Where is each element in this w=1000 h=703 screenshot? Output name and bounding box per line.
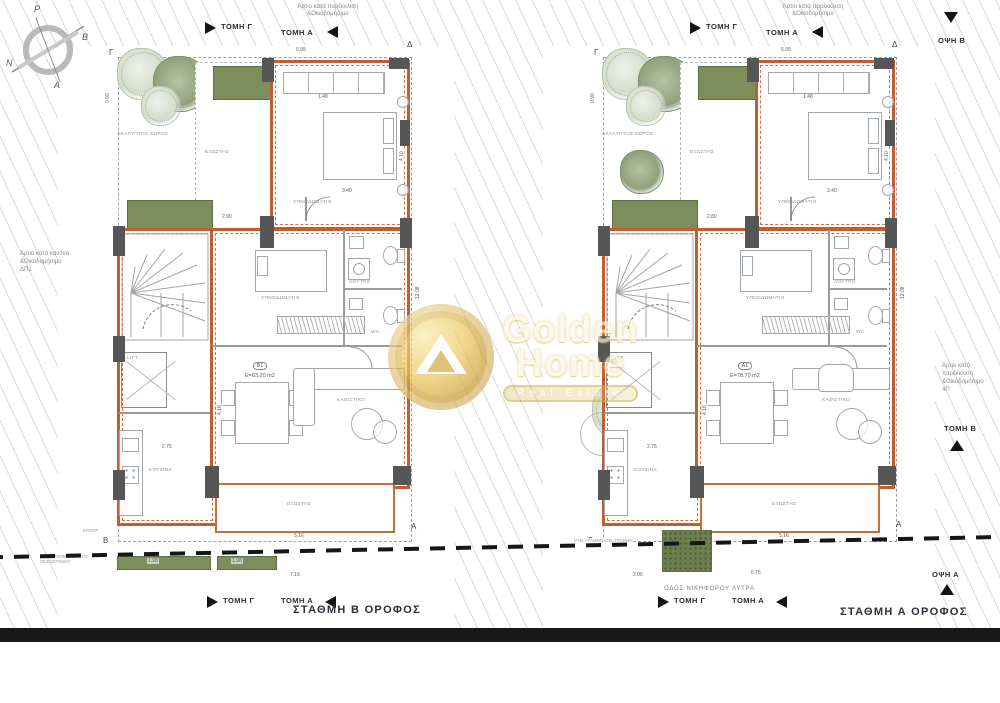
column <box>747 58 759 82</box>
column <box>690 466 704 498</box>
interior-wall <box>344 288 402 290</box>
view-flag-icon <box>940 584 954 595</box>
section-flag-icon <box>205 22 216 34</box>
wardrobe-hangers <box>762 316 850 334</box>
dimension: 0.90 <box>590 92 596 104</box>
door-arc-icon <box>305 196 331 222</box>
side-note-line1: Άρτιο κατά παρέκκλιση <box>942 363 973 377</box>
room-label-kitchen: ΚΟΥΖΙΝΑ <box>634 468 657 473</box>
pillow <box>742 256 753 276</box>
interior-wall <box>119 412 210 414</box>
section-flag-icon <box>207 596 218 608</box>
nightstand-lamp <box>882 96 894 108</box>
room-label-bath: ΛΟΥΤΡΟ <box>834 280 856 285</box>
section-flag-icon <box>658 596 669 608</box>
kitchen-sink <box>122 438 139 452</box>
section-label-b: ΤΟΜΗ Β <box>944 424 976 433</box>
sofa <box>307 368 405 390</box>
dimension: 3.40 <box>826 188 838 194</box>
dimension: 1.48 <box>802 94 814 100</box>
winding-stair-icon <box>121 233 209 341</box>
dimension: 4.10 <box>884 150 890 162</box>
left-plot-note: Άρτιο κατά κανόνα &Οικοδομήσιμο ΔΠ1 <box>20 250 69 274</box>
nightstand-lamp <box>882 184 894 196</box>
plot-corner-delta: Δ <box>892 40 897 49</box>
room-label-uncovered: ΑΚΑΛΥΠΤΟΣ ΧΩΡΟΣ <box>602 132 653 137</box>
top-plot-note: Άρτιο κατά παρέκκλιση &Οικοδομήσιμο <box>758 4 868 18</box>
dimension: 3.40 <box>341 188 353 194</box>
section-flag-icon <box>812 26 823 38</box>
toilet <box>383 246 398 265</box>
chair <box>221 420 235 436</box>
dimension: 12.08 <box>415 285 421 300</box>
section-flag-icon <box>776 596 787 608</box>
column <box>113 470 125 500</box>
column <box>389 58 409 69</box>
unit-area: Ε=63.20 m2 <box>245 373 275 379</box>
sheet-border-bar <box>0 628 1000 642</box>
dimension: 4.10 <box>399 150 405 162</box>
column <box>400 120 410 146</box>
balcony-walls <box>700 483 880 533</box>
view-flag-icon <box>944 12 958 23</box>
section-label-a: ΤΟΜΗ Α <box>281 28 313 37</box>
dimension: 1.98 <box>231 558 243 564</box>
toilet-tank <box>882 309 890 323</box>
compass-letter-left: Ν <box>6 58 13 68</box>
dimension: 5.16 <box>293 533 305 539</box>
dimension: 7.16 <box>289 572 301 578</box>
side-note-line3: ΔΠ1 <box>20 267 32 273</box>
planted-bed <box>662 530 712 572</box>
dining-table <box>720 382 774 444</box>
column <box>598 226 610 256</box>
street-line-letter-b: Β <box>103 536 108 545</box>
dimension: 4.18 <box>217 404 223 416</box>
room-label-bedroom2: ΥΠΝΟΔΩΜΑΤΙΟ <box>261 296 300 301</box>
shower-drain <box>353 263 365 275</box>
room-label-bedroom2: ΥΠΝΟΔΩΜΑΤΙΟ <box>746 296 785 301</box>
dimension: 2.75 <box>646 444 658 450</box>
tree-icon <box>141 86 181 126</box>
toilet <box>868 306 883 325</box>
room-label-erker: ΕΡΚΕΡ <box>83 528 98 533</box>
planter <box>217 556 277 570</box>
room-label-living: ΚΑΘΙΣΤΙΚΟ <box>337 398 365 403</box>
unit-id: Β1 <box>253 362 268 370</box>
sink <box>349 298 363 310</box>
dimension: 4.18 <box>702 404 708 416</box>
dimension: 1.48 <box>317 94 329 100</box>
room-label-terrace: ΕΞΩΣΤΗΣ <box>690 150 714 155</box>
section-label-g: ΤΟΜΗ Γ <box>221 22 253 31</box>
column <box>393 466 411 485</box>
shower-drain <box>838 263 850 275</box>
bottom-section-label-g: ΤΟΜΗ Γ <box>223 596 255 605</box>
wardrobe <box>768 72 870 94</box>
top-note-line1: Άρτιο κατά παρέκκλιση <box>298 4 359 10</box>
section-label-a: ΤΟΜΗ Α <box>766 28 798 37</box>
plot-corner-gamma: Γ <box>109 48 113 57</box>
room-label-kitchen: ΚΟΥΖΙΝΑ <box>149 468 172 473</box>
sink <box>349 236 364 249</box>
floor-plan-level-b: Άρτιο κατά παρέκκλιση &Οικοδομήσιμο ΤΟΜΗ… <box>55 0 455 628</box>
column <box>878 466 896 485</box>
coffee-table <box>858 420 882 444</box>
section-flag-icon <box>690 22 701 34</box>
armchair <box>818 364 854 392</box>
room-label-balcony: ΕΞΩΣΤΗΣ <box>287 502 311 507</box>
unit-area: Ε=78.70 m2 <box>730 373 760 379</box>
sofa-chaise <box>293 368 315 426</box>
room-label-wc: WC <box>371 330 380 335</box>
coffee-table <box>373 420 397 444</box>
chair <box>706 390 720 406</box>
top-plot-note: Άρτιο κατά παρέκκλιση &Οικοδομήσιμο <box>273 4 383 18</box>
dimension: 12.08 <box>900 285 906 300</box>
wardrobe <box>283 72 385 94</box>
top-note-line1: Άρτιο κατά παρέκκλιση <box>783 4 844 10</box>
interior-wall <box>212 345 402 347</box>
top-note-line2: &Οικοδομήσιμο <box>307 11 349 17</box>
street-line-letter-a: Α <box>896 520 901 529</box>
column <box>262 58 274 82</box>
dimension: 0.90 <box>105 92 111 104</box>
dimension: 2.75 <box>161 444 173 450</box>
compass-letter-top: Ρ <box>34 4 40 14</box>
room-label-wc: WC <box>856 330 865 335</box>
architectural-drawing-sheet: { "compass": {"top": "Ρ", "right": "Β", … <box>0 0 1000 703</box>
sink <box>834 236 849 249</box>
pillow <box>383 118 394 144</box>
nightstand-lamp <box>397 184 409 196</box>
unit-id: Α1 <box>738 362 753 370</box>
column <box>885 120 895 146</box>
side-note-line2: &Οικοδομήσιμο <box>942 379 984 385</box>
dimension: 5.95 <box>780 47 792 53</box>
section-flag-icon <box>327 26 338 38</box>
wardrobe-hangers <box>277 316 365 334</box>
pillow <box>868 118 879 144</box>
column <box>874 58 894 69</box>
plan-title: ΣΤΑΘΜΗ Α ΟΡΟΦΟΣ <box>840 606 968 618</box>
floor-plan-level-a: Άρτιο κατά παρέκκλιση &Οικοδομήσιμο ΤΟΜΗ… <box>540 0 940 628</box>
column <box>598 470 610 500</box>
plan-title: ΣΤΑΘΜΗ Β ΟΡΟΦΟΣ <box>293 604 421 616</box>
dimension: 2.90 <box>221 214 233 220</box>
interior-wall <box>829 288 887 290</box>
plot-corner-delta: Δ <box>407 40 412 49</box>
balcony-walls <box>215 483 395 533</box>
chair <box>774 390 788 406</box>
top-note-line2: &Οικοδομήσιμο <box>792 11 834 17</box>
door-arc-icon <box>790 196 816 222</box>
side-note-line2: &Οικοδομήσιμο <box>20 259 62 265</box>
side-note-line1: Άρτιο κατά κανόνα <box>20 251 69 257</box>
pillow <box>868 148 879 174</box>
dimension: 1.98 <box>147 558 159 564</box>
room-label-uncovered: ΑΚΑΛΥΠΤΟΣ ΧΩΡΟΣ <box>117 132 168 137</box>
street-line-letter-a: Α <box>411 522 416 531</box>
unit-badge: Α1 Ε=78.70 m2 <box>730 354 760 379</box>
room-label-terrace: ΕΞΩΣΤΗΣ <box>205 150 229 155</box>
bottom-section-label-a: ΤΟΜΗ Α <box>732 596 764 605</box>
room-label-living: ΚΑΘΙΣΤΙΚΟ <box>822 398 850 403</box>
right-plot-note: Άρτιο κατά παρέκκλιση &Οικοδομήσιμο 4Π <box>942 362 1000 394</box>
sink <box>834 298 848 310</box>
column <box>113 336 125 362</box>
sidewalk-note-line2: ΠΕΖΟΔΡΟΜΙΟΥ <box>40 559 71 564</box>
column <box>260 216 274 248</box>
door-arc-icon <box>349 346 373 370</box>
section-flag-icon <box>950 440 964 451</box>
dimension: 2.06 <box>632 572 644 578</box>
section-label-g: ΤΟΜΗ Γ <box>706 22 738 31</box>
dimension: 5.75 <box>750 570 762 576</box>
toilet-tank <box>882 249 890 263</box>
column <box>745 216 759 248</box>
chair <box>706 420 720 436</box>
chair <box>774 420 788 436</box>
room-label-lift: LIFT <box>127 356 138 361</box>
dimension: 5.95 <box>295 47 307 53</box>
column <box>205 466 219 498</box>
dimension: 2.80 <box>706 214 718 220</box>
column <box>400 218 412 248</box>
nightstand-lamp <box>397 96 409 108</box>
kitchen-sink <box>607 438 624 452</box>
street-name: ΟΔΟΣ ΝΙΚΗΦΟΡΟΥ ΛΥΤΡΑ <box>664 586 755 592</box>
interior-wall <box>697 345 887 347</box>
dining-table <box>235 382 289 444</box>
room-label-lift: LIFT <box>612 356 623 361</box>
bottom-section-label-g: ΤΟΜΗ Γ <box>674 596 706 605</box>
view-label-a: ΟΨΗ Α <box>932 570 959 579</box>
tree-icon <box>620 150 664 194</box>
pillow <box>383 148 394 174</box>
column <box>598 336 610 362</box>
view-label-b: ΟΨΗ Β <box>938 36 965 45</box>
sheet-margin <box>0 642 1000 703</box>
column <box>113 226 125 256</box>
column <box>885 218 897 248</box>
plot-corner-gamma: Γ <box>594 48 598 57</box>
room-label-bath: ΛΟΥΤΡΟ <box>349 280 371 285</box>
tree-icon <box>626 86 666 126</box>
toilet-tank <box>397 249 405 263</box>
chair <box>221 390 235 406</box>
winding-stair-icon <box>606 233 694 341</box>
toilet-tank <box>397 309 405 323</box>
unit-badge: Β1 Ε=63.20 m2 <box>245 354 275 379</box>
side-note-line3: 4Π <box>942 387 950 393</box>
interior-wall <box>604 412 695 414</box>
toilet <box>868 246 883 265</box>
dimension: 5.16 <box>778 533 790 539</box>
room-label-balcony: ΕΞΩΣΤΗΣ <box>772 502 796 507</box>
planter <box>117 556 211 570</box>
toilet <box>383 306 398 325</box>
pillow <box>257 256 268 276</box>
